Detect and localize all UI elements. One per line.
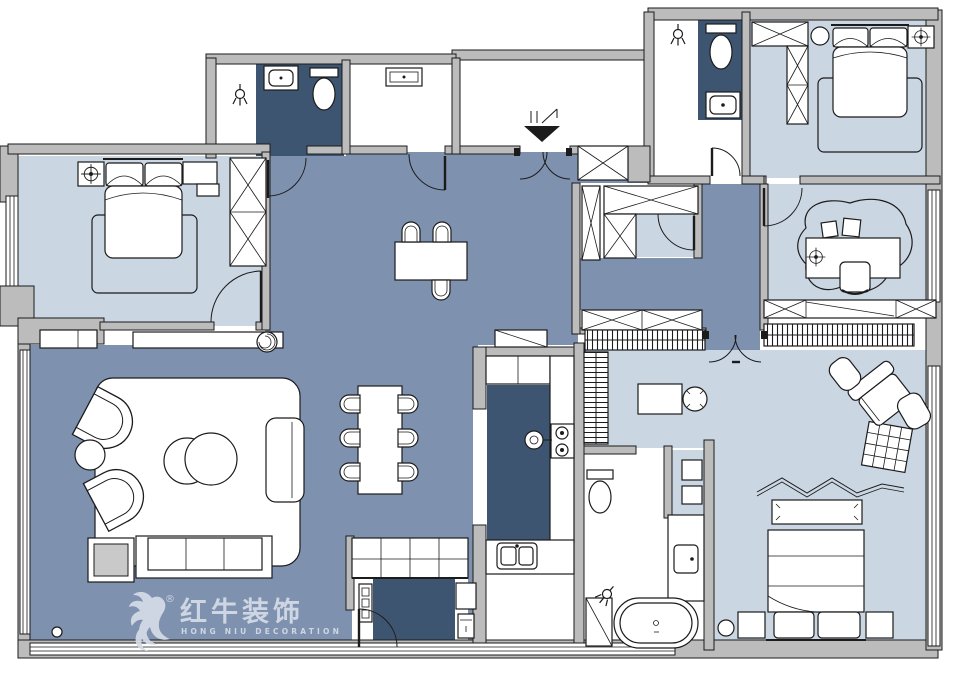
checkered-rug-icon <box>862 422 913 473</box>
bedroom2-left-wall <box>742 12 750 178</box>
dining-chair-icon <box>398 463 418 481</box>
side-table-icon <box>75 440 105 470</box>
drying-rack-icon <box>584 352 608 444</box>
vestibule-left-wall <box>452 58 460 154</box>
sofa-icon <box>136 536 272 578</box>
storage-room <box>652 124 744 178</box>
walk-in-closet-floor <box>634 213 694 257</box>
master-window <box>6 196 18 286</box>
storage-bottom-wall <box>648 176 710 184</box>
bedroom3-bench-icon <box>772 500 862 524</box>
dining-chair-icon <box>340 395 360 413</box>
drying-rack-icon <box>764 324 914 346</box>
appliance-label <box>359 584 372 622</box>
hall-cabinet-icon <box>495 330 547 347</box>
hall-top-wall <box>307 146 407 154</box>
side-table-icon <box>638 384 682 414</box>
laundry-wet-floor <box>373 578 455 645</box>
bedroom2-bottom-wall <box>742 176 764 184</box>
hall-right-wall <box>572 183 580 334</box>
dining-chair-icon <box>340 429 360 447</box>
study-window <box>928 190 940 302</box>
bedroom2-ceiling-light-icon <box>908 26 934 48</box>
master-wardrobe-icon <box>230 158 266 266</box>
sink-icon <box>706 92 740 118</box>
study-cabinet-row-icon <box>764 300 936 318</box>
master-bottom-wall <box>100 322 214 330</box>
closet-corridor-floor <box>580 258 702 310</box>
watermark-brand: 红牛装饰 <box>180 596 304 628</box>
family-area-furniture <box>638 384 707 414</box>
chair-icon <box>432 280 450 300</box>
room-divider-wall <box>342 60 350 154</box>
drying-rack-icon <box>585 330 705 350</box>
entry-side-wall <box>628 146 650 182</box>
corridor-floor <box>698 184 760 350</box>
bathroom3-alcove-wall <box>664 446 672 518</box>
floor-plan-drawing: ® 红牛装饰 HONG NIU DECORATION <box>0 0 980 680</box>
stool-icon <box>811 27 829 45</box>
master-bed-icon <box>103 159 183 258</box>
bedroom3-window <box>928 366 940 646</box>
living-window <box>20 350 30 634</box>
chair-icon <box>402 222 420 242</box>
stool-icon <box>718 620 734 636</box>
dining-chair-icon <box>340 463 360 481</box>
bathtub-icon <box>614 598 698 648</box>
dining-chair-icon <box>398 429 418 447</box>
dining-set <box>340 386 418 494</box>
nightstand-icon <box>738 612 765 638</box>
shoe-cabinet-icon <box>578 146 628 180</box>
kitchen-right-wall <box>574 343 584 648</box>
kitchen-wet-floor <box>487 385 550 540</box>
coffee-table-icon <box>185 433 237 485</box>
laundry-cabinet-grid <box>352 538 468 578</box>
bedroom2-bottom-wall <box>800 176 940 184</box>
round-table-icon <box>683 387 707 411</box>
outer-wall-top-right <box>648 8 938 20</box>
nightstand-icon <box>866 612 893 638</box>
chair-icon <box>433 222 451 242</box>
registered-mark: ® <box>165 594 175 605</box>
desk-chair-icon <box>840 262 870 294</box>
bathroom1-top-wall <box>206 54 456 64</box>
sofa-side-table-icon <box>88 538 134 582</box>
master-ceiling-light-icon <box>78 162 104 186</box>
stove-icon <box>551 424 574 458</box>
kitchen-left-wall <box>473 347 486 409</box>
chaise-icon <box>266 418 304 502</box>
dining-chair-icon <box>398 395 418 413</box>
bedroom2-bed-icon <box>831 25 909 117</box>
bathroom3-right-wall <box>704 440 714 650</box>
vestibule-top-wall <box>452 50 652 60</box>
kitchen-sink-icon <box>497 543 537 569</box>
floor-plan-screenshot: ® 红牛装饰 HONG NIU DECORATION <box>0 0 980 680</box>
entry-table-icon <box>395 242 467 280</box>
entry-vestibule-floor <box>455 54 645 152</box>
watermark-subtitle: HONG NIU DECORATION <box>181 627 342 636</box>
plant-icon <box>257 332 277 352</box>
bathroom3-top-wall <box>584 446 636 454</box>
bathroom1-left-wall <box>206 58 216 158</box>
mirror-cabinet-icon <box>386 68 422 86</box>
master-top-wall <box>8 144 270 154</box>
dining-table-icon <box>358 386 402 494</box>
toilet-icon <box>587 470 613 513</box>
bottom-window <box>30 643 675 655</box>
